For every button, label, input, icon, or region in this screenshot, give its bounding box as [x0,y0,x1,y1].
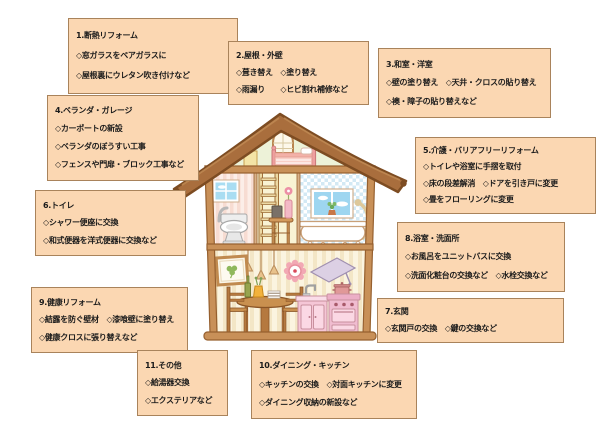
box-title: 9.健康リフォーム [39,298,180,308]
box-title: 2.屋根・外壁 [236,51,361,61]
box-item: ◇健康クロスに張り替えなど [39,333,180,343]
category-box-bath-washroom: 8.浴室・洗面所 ◇お風呂をユニットバスに交換 ◇洗面化粧台の交換など ◇水栓交… [397,222,565,292]
category-box-insulation: 1.断熱リフォーム ◇窓ガラスをペアガラスに ◇屋根裏にウレタン吹き付けなど [68,18,238,94]
box-title: 11.その他 [145,361,220,371]
box-item: ◇シャワー便座に交換 [43,218,178,228]
renovation-diagram: 1.断熱リフォーム ◇窓ガラスをペアガラスに ◇屋根裏にウレタン吹き付けなど 2… [0,0,600,426]
category-box-others: 11.その他 ◇給湯器交換 ◇エクステリアなど [137,350,228,416]
box-title: 4.ベランダ・ガレージ [55,106,191,116]
box-title: 8.浴室・洗面所 [405,234,557,244]
box-item: ◇雨漏り ◇ヒビ割れ補修など [236,85,361,95]
category-box-veranda-garage: 4.ベランダ・ガレージ ◇カーポートの新設 ◇ベランダのぼうすい工事 ◇フェンス… [47,95,199,181]
box-item: ◇屋根裏にウレタン吹き付けなど [76,71,230,81]
box-title: 3.和室・洋室 [386,60,543,70]
box-title: 6.トイレ [43,201,178,211]
box-title: 10.ダイニング・キッチン [259,361,409,371]
box-item: ◇お風呂をユニットバスに交換 [405,252,557,262]
box-item: ◇ベランダのぼうすい工事 [55,142,191,152]
box-item: ◇ダイニング収納の新設など [259,398,409,408]
category-box-barrier-free: 5.介護・バリアフリーリフォーム ◇トイレや浴室に手摺を取付 ◇床の段差解消 ◇… [415,137,596,214]
category-box-entrance: 7.玄関 ◇玄関戸の交換 ◇鍵の交換など [377,298,564,343]
box-item: ◇結露を防ぐ壁材 ◇漆喰壁に塗り替え [39,315,180,325]
box-item: ◇葺き替え ◇塗り替え [236,68,361,78]
picture-frame [216,256,248,285]
toilet-window [213,180,239,202]
box-item: ◇和式便器を洋式便器に交換など [43,236,178,246]
category-box-health: 9.健康リフォーム ◇結露を防ぐ壁材 ◇漆喰壁に塗り替え ◇健康クロスに張り替え… [31,287,188,353]
box-item: ◇フェンスや門扉・ブロック工事など [55,160,191,170]
category-box-toilet: 6.トイレ ◇シャワー便座に交換 ◇和式便器を洋式便器に交換など [35,190,186,256]
box-item: ◇玄関戸の交換 ◇鍵の交換など [385,324,556,334]
box-item: ◇給湯器交換 [145,378,220,388]
box-item: ◇窓ガラスをペアガラスに [76,51,230,61]
flower-clock [284,260,306,282]
box-item: ◇トイレや浴室に手摺を取付 [423,162,588,172]
box-item: ◇壁の塗り替え ◇天井・クロスの貼り替え [386,78,543,88]
category-box-dining-kitchen: 10.ダイニング・キッチン ◇キッチンの交換 ◇対面キッチンに変更 ◇ダイニング… [251,350,417,419]
box-item: ◇洗面化粧台の交換など ◇水栓交換など [405,271,557,281]
box-item: ◇襖・障子の貼り替えなど [386,97,543,107]
box-item: ◇床の段差解消 ◇ドアを引き戸に変更 [423,179,588,189]
category-box-japanese-western-rooms: 3.和室・洋室 ◇壁の塗り替え ◇天井・クロスの貼り替え ◇襖・障子の貼り替えな… [378,48,551,118]
category-box-roof-exterior: 2.屋根・外壁 ◇葺き替え ◇塗り替え ◇雨漏り ◇ヒビ割れ補修など [228,41,369,105]
bathroom-window [311,189,353,218]
box-title: 1.断熱リフォーム [76,31,230,41]
box-item: ◇エクステリアなど [145,396,220,406]
box-item: ◇キッチンの交換 ◇対面キッチンに変更 [259,380,409,390]
box-item: ◇カーポートの新設 [55,124,191,134]
box-title: 7.玄関 [385,307,556,317]
plate-stack [268,291,280,298]
box-item: ◇畳をフローリングに変更 [423,195,588,205]
box-title: 5.介護・バリアフリーリフォーム [423,146,588,156]
flower-vase [285,187,293,218]
